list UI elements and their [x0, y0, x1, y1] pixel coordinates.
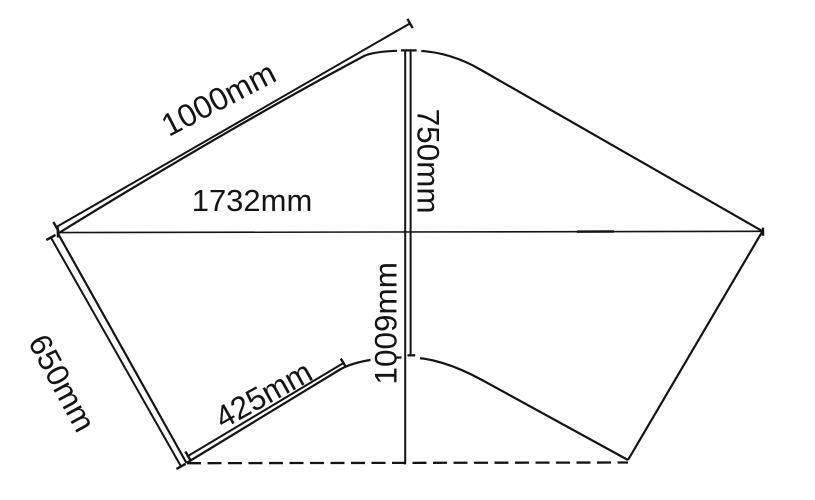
svg-text:750mm: 750mm	[410, 109, 446, 214]
svg-text:1732mm: 1732mm	[192, 183, 313, 218]
svg-text:1009mm: 1009mm	[367, 262, 403, 385]
